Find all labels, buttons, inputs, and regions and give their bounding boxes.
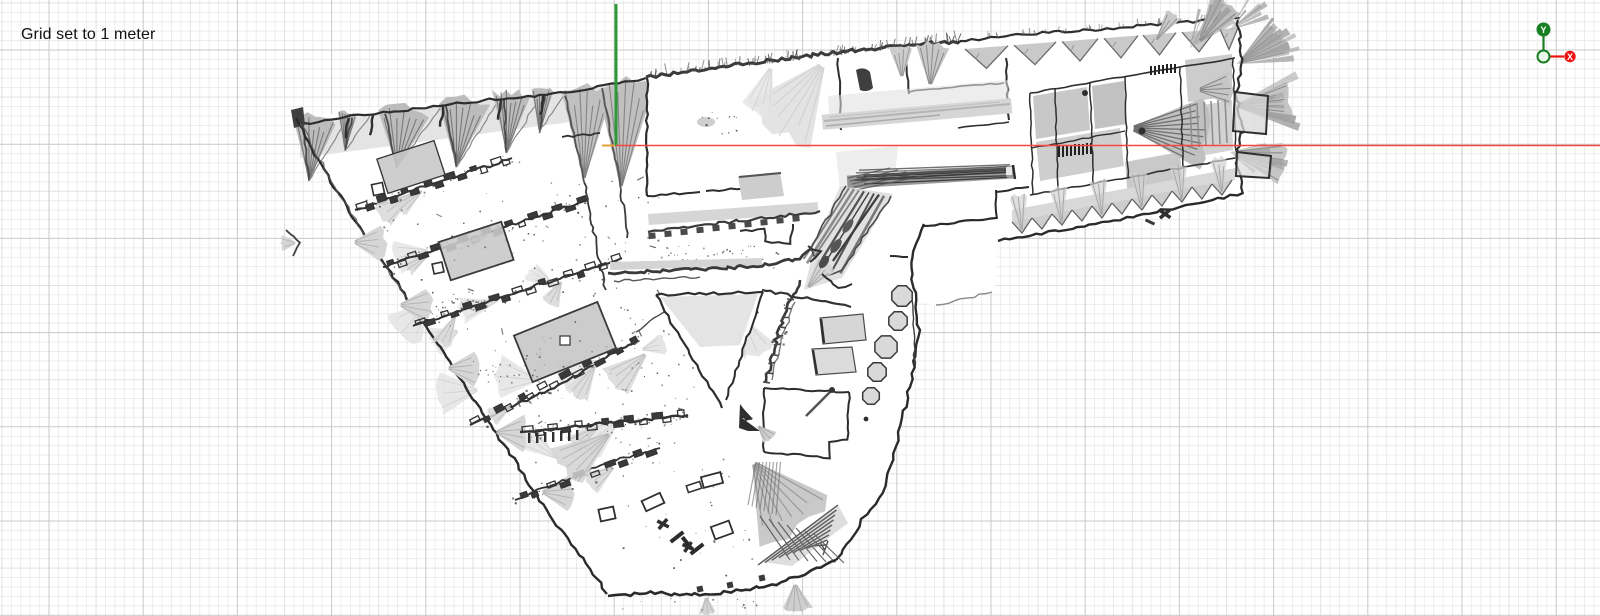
svg-text:Y: Y <box>1540 25 1546 35</box>
svg-text:Grid set to 1 meter: Grid set to 1 meter <box>21 26 156 43</box>
svg-text:X: X <box>1567 52 1573 62</box>
